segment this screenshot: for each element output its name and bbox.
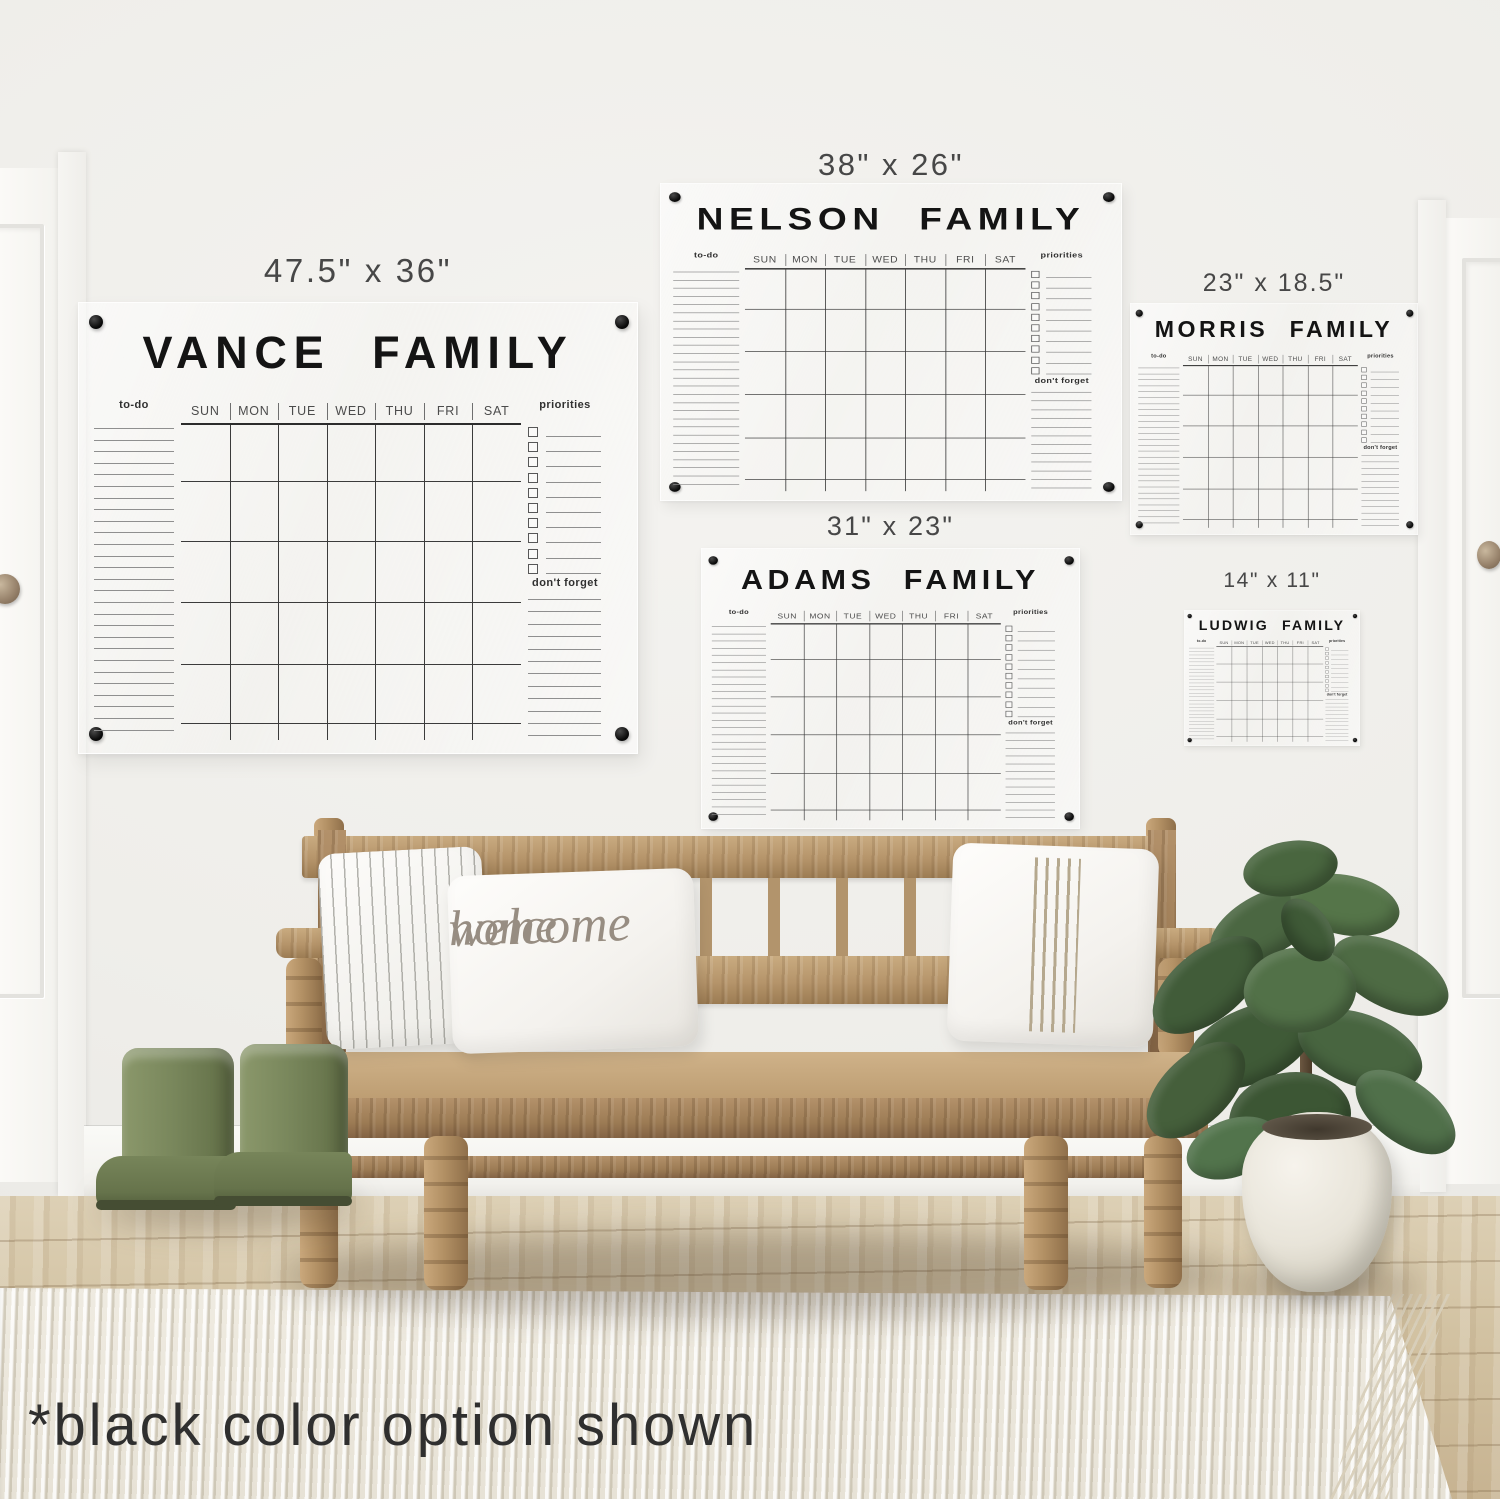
todo-line [1138, 415, 1179, 416]
priority-line [1018, 631, 1055, 632]
calendar-size-label: 38" x 26" [818, 147, 964, 183]
todo-line [94, 672, 174, 673]
bench-leg [424, 1136, 468, 1290]
calendar-size-label: 23" x 18.5" [1203, 269, 1346, 298]
todo-line [712, 749, 766, 750]
todo-line [712, 662, 766, 663]
day-label: WED [1262, 640, 1277, 646]
todo-line [94, 683, 174, 684]
priority-line [1371, 372, 1399, 373]
day-separator [1283, 355, 1284, 364]
dont-forget-line [1361, 481, 1399, 482]
priority-checkbox [1006, 682, 1013, 688]
dont-forget-label: don't forget [1325, 693, 1350, 697]
day-separator [375, 403, 376, 420]
todo-line [712, 720, 766, 721]
day-separator [865, 254, 866, 266]
todo-line [94, 625, 174, 626]
dont-forget-line [1361, 487, 1399, 488]
dont-forget-line [1031, 470, 1091, 471]
priority-line [1018, 641, 1055, 642]
day-label: WED [327, 401, 376, 421]
grid-line-horizontal [745, 479, 1026, 480]
todo-line [712, 785, 766, 786]
priority-line [1046, 352, 1091, 353]
acrylic-panel: VANCE FAMILYto-doSUNMONTUEWEDTHUFRISATpr… [78, 302, 638, 754]
priority-checkbox [528, 564, 538, 574]
todo-line [1138, 445, 1179, 446]
grid-line-vertical [945, 270, 946, 492]
calendar-size-label: 31" x 23" [827, 511, 954, 542]
mount-dot [1064, 812, 1073, 821]
priority-line [1018, 679, 1055, 680]
todo-line [673, 386, 739, 387]
calendar-size-label: 47.5" x 36" [264, 252, 452, 290]
priority-line [1371, 403, 1399, 404]
calendar-title: NELSON FAMILY [661, 198, 1121, 240]
todo-line [1138, 427, 1179, 428]
day-separator [869, 611, 870, 622]
todo-line [1138, 469, 1179, 470]
grid-line-vertical [1208, 366, 1209, 528]
priority-checkbox [1361, 422, 1366, 427]
todo-line [94, 614, 174, 615]
todo-line [1138, 505, 1179, 506]
todo-line [1138, 403, 1179, 404]
todo-line [673, 312, 739, 313]
todo-line [94, 509, 174, 510]
priority-checkbox [1361, 375, 1366, 380]
day-label: WED [1258, 354, 1283, 364]
priority-checkbox [1031, 335, 1039, 342]
todo-line [673, 484, 739, 485]
dont-forget-line [1361, 525, 1399, 526]
priority-checkbox [528, 442, 538, 452]
priority-line [1371, 387, 1399, 388]
door-right-knob [1477, 541, 1500, 569]
priority-line [546, 497, 601, 498]
priority-checkbox [1361, 437, 1366, 442]
todo-line [94, 428, 174, 429]
grid-line-horizontal [1183, 426, 1358, 427]
calendar-title: LUDWIG FAMILY [1184, 616, 1359, 634]
todo-line [94, 544, 174, 545]
todo-line [712, 691, 766, 692]
grid-line-horizontal [745, 394, 1026, 395]
grid-line-vertical [935, 624, 936, 820]
todo-line [1138, 522, 1179, 523]
acrylic-panel: MORRIS FAMILYto-doSUNMONTUEWEDTHUFRISATp… [1130, 303, 1418, 535]
todo-line [673, 427, 739, 428]
day-label: THU [905, 253, 945, 267]
day-label: TUE [1247, 640, 1262, 646]
day-label: THU [902, 610, 935, 622]
grid-line-horizontal [745, 309, 1026, 310]
priority-checkbox [528, 457, 538, 467]
priority-checkbox [1006, 664, 1013, 670]
day-label: TUE [278, 401, 327, 421]
day-label: SAT [985, 253, 1025, 267]
mount-dot [1353, 738, 1357, 742]
grid-line-horizontal [771, 773, 1001, 774]
dont-forget-line [1361, 475, 1399, 476]
calendar-title: VANCE FAMILY [79, 323, 637, 383]
todo-line [712, 626, 766, 627]
dont-forget-label: don't forget [526, 577, 604, 589]
priorities-label: priorities [1325, 639, 1350, 643]
dont-forget-line [528, 711, 601, 712]
todo-line [712, 698, 766, 699]
priority-checkbox [1031, 314, 1039, 321]
door-right-casing [1418, 200, 1446, 1192]
priority-line [1371, 419, 1399, 420]
priority-checkbox [1031, 367, 1039, 374]
plant-pot-rim [1262, 1114, 1372, 1140]
day-label: TUE [825, 253, 865, 267]
bench-shadow [280, 1232, 1230, 1318]
priority-checkbox [1325, 684, 1328, 687]
grid-line-horizontal [181, 602, 521, 603]
todo-line [1138, 439, 1179, 440]
priority-checkbox [1361, 414, 1366, 419]
priority-checkbox [1361, 391, 1366, 396]
priority-line [1046, 331, 1091, 332]
priority-line [1018, 660, 1055, 661]
grid-line-horizontal [771, 659, 1001, 660]
dont-forget-line [1031, 418, 1091, 419]
dont-forget-line [1006, 733, 1055, 734]
todo-line [94, 521, 174, 522]
todo-line [712, 713, 766, 714]
todo-line [1138, 380, 1179, 381]
pillow-welcome: welcome home [447, 868, 699, 1054]
priority-line [1018, 697, 1055, 698]
priority-checkbox [1031, 292, 1039, 299]
priority-line [546, 558, 601, 559]
todo-line [94, 498, 174, 499]
day-label: FRI [1293, 640, 1308, 646]
day-label: THU [1277, 640, 1292, 646]
priority-line [546, 512, 601, 513]
dont-forget-line [1361, 519, 1399, 520]
todo-line [673, 476, 739, 477]
grid-line-vertical [230, 425, 231, 740]
day-separator [836, 611, 837, 622]
todo-line [94, 486, 174, 487]
todo-line [712, 641, 766, 642]
grid-line-vertical [785, 270, 786, 492]
dont-forget-line [1031, 401, 1091, 402]
grid-line-vertical [327, 425, 328, 740]
priority-line [1371, 411, 1399, 412]
todo-line [712, 648, 766, 649]
todo-line [1138, 475, 1179, 476]
priority-checkbox [1006, 673, 1013, 679]
acrylic-panel: NELSON FAMILYto-doSUNMONTUEWEDTHUFRISATp… [660, 183, 1122, 501]
day-label: TUE [836, 610, 869, 622]
priority-checkbox [1325, 689, 1328, 692]
todo-line [94, 660, 174, 661]
todo-line [94, 706, 174, 707]
todo-line [1138, 493, 1179, 494]
day-separator [945, 254, 946, 266]
todo-line [94, 579, 174, 580]
mount-dot [1103, 482, 1115, 492]
dont-forget-line [1031, 409, 1091, 410]
priority-checkbox [1031, 346, 1039, 353]
priority-checkbox [1006, 635, 1013, 641]
day-label: THU [1283, 354, 1308, 364]
todo-line [673, 394, 739, 395]
grid-line-vertical [424, 425, 425, 740]
todo-line [1138, 481, 1179, 482]
priority-line [1371, 442, 1399, 443]
priority-checkbox [528, 503, 538, 513]
dont-forget-line [1006, 771, 1055, 772]
dont-forget-line [1006, 810, 1055, 811]
todo-line [1138, 499, 1179, 500]
dont-forget-label: don't forget [1360, 444, 1400, 450]
dont-forget-line [1031, 392, 1091, 393]
todo-line [712, 807, 766, 808]
todo-label: to-do [1189, 639, 1214, 643]
priority-line [546, 466, 601, 467]
grid-line-vertical [804, 624, 805, 820]
todo-line [712, 655, 766, 656]
mount-dot [615, 727, 629, 741]
bench-seat [272, 1052, 1208, 1100]
todo-line [712, 799, 766, 800]
priority-line [1018, 669, 1055, 670]
day-separator [278, 403, 279, 420]
dont-forget-line [1006, 740, 1055, 741]
day-label: SUN [1216, 640, 1231, 646]
todo-line [673, 288, 739, 289]
grid-line-vertical [836, 624, 837, 820]
todo-line [673, 370, 739, 371]
todo-line [673, 296, 739, 297]
priority-line [1371, 380, 1399, 381]
grid-line-vertical [865, 270, 866, 492]
dont-forget-line [1006, 748, 1055, 749]
todo-line [94, 590, 174, 591]
priority-line [546, 451, 601, 452]
dont-forget-line [1031, 436, 1091, 437]
priorities-label: priorities [1030, 251, 1094, 259]
room-scene: 47.5" x 36"VANCE FAMILYto-doSUNMONTUEWED… [0, 0, 1500, 1499]
todo-line [1138, 457, 1179, 458]
acrylic-panel: LUDWIG FAMILYto-doSUNMONTUEWEDTHUFRISATp… [1184, 610, 1360, 746]
day-label: MON [1208, 354, 1233, 364]
priority-checkbox [1325, 675, 1328, 678]
priority-checkbox [1325, 666, 1328, 669]
todo-line [1138, 433, 1179, 434]
grid-line-vertical [905, 270, 906, 492]
dont-forget-line [1361, 494, 1399, 495]
day-label: MON [230, 401, 279, 421]
todo-line [673, 361, 739, 362]
calendar-title: ADAMS FAMILY [702, 561, 1080, 598]
todo-line [712, 742, 766, 743]
dont-forget-line [1361, 455, 1399, 456]
day-label: MON [1232, 640, 1247, 646]
calendar-size-label: 14" x 11" [1223, 569, 1320, 593]
priority-line [1018, 707, 1055, 708]
todo-line [712, 670, 766, 671]
todo-line [712, 778, 766, 779]
day-label: FRI [1308, 354, 1333, 364]
pillow-striped-right [947, 842, 1160, 1047]
priority-checkbox [528, 533, 538, 543]
priority-checkbox [528, 549, 538, 559]
day-label: SUN [1183, 354, 1208, 364]
todo-line [673, 451, 739, 452]
todo-line [1138, 409, 1179, 410]
bench-arm-baluster [286, 958, 322, 1058]
priority-line [1046, 341, 1091, 342]
priority-checkbox [1361, 398, 1366, 403]
todo-line [94, 463, 174, 464]
priority-checkbox [1325, 670, 1328, 673]
todo-line [94, 567, 174, 568]
priority-checkbox [1031, 303, 1039, 310]
priority-line [1046, 277, 1091, 278]
priority-line [1371, 426, 1399, 427]
priority-checkbox [1031, 324, 1039, 331]
todo-line [712, 763, 766, 764]
day-separator [804, 611, 805, 622]
dont-forget-line [1006, 756, 1055, 757]
grid-line-vertical [278, 425, 279, 740]
todo-line [712, 677, 766, 678]
priority-checkbox [528, 518, 538, 528]
grid-line-horizontal [1183, 519, 1358, 520]
grid-line-horizontal [181, 541, 521, 542]
priority-checkbox [1325, 652, 1328, 655]
day-label: TUE [1233, 354, 1258, 364]
todo-line [712, 756, 766, 757]
day-label: MON [785, 253, 825, 267]
day-label: THU [375, 401, 424, 421]
todo-line [673, 304, 739, 305]
grid-line-vertical [1283, 366, 1284, 528]
todo-line [1138, 374, 1179, 375]
todo-line [712, 727, 766, 728]
grid-line-vertical [1258, 366, 1259, 528]
grid-line-vertical [985, 270, 986, 492]
todo-line [673, 272, 739, 273]
todo-line [712, 792, 766, 793]
pillow-stripe-band [1029, 857, 1081, 1032]
priority-checkbox [1325, 661, 1328, 664]
todo-line [94, 718, 174, 719]
day-separator [985, 254, 986, 266]
todo-line [1138, 463, 1179, 464]
grid-line-horizontal [1183, 457, 1358, 458]
todo-line [673, 468, 739, 469]
pillow-welcome-text: welcome home [448, 894, 694, 903]
mount-dot [1406, 521, 1413, 528]
todo-line [1138, 451, 1179, 452]
todo-label: to-do [712, 608, 766, 615]
todo-line [673, 353, 739, 354]
todo-line [712, 814, 766, 815]
todo-line [673, 280, 739, 281]
dont-forget-label: don't forget [1004, 719, 1057, 726]
dont-forget-line [1031, 479, 1091, 480]
day-separator [230, 403, 231, 420]
day-label: SAT [968, 610, 1001, 622]
day-separator [785, 254, 786, 266]
dont-forget-label: don't forget [1030, 376, 1094, 384]
header-underline [771, 623, 1001, 624]
dont-forget-line [1361, 500, 1399, 501]
priorities-label: priorities [526, 399, 604, 411]
grid-line-horizontal [771, 697, 1001, 698]
todo-line [94, 474, 174, 475]
grid-line-vertical [472, 425, 473, 740]
bench-leg [1144, 1136, 1182, 1288]
todo-line [673, 402, 739, 403]
dont-forget-line [528, 686, 601, 687]
priority-checkbox [1361, 430, 1366, 435]
grid-line-vertical [869, 624, 870, 820]
priority-checkbox [1361, 406, 1366, 411]
grid-line-vertical [1333, 366, 1334, 528]
grid-line-horizontal [771, 735, 1001, 736]
todo-line [94, 440, 174, 441]
dont-forget-line [1031, 444, 1091, 445]
day-label: FRI [945, 253, 985, 267]
day-separator [968, 611, 969, 622]
todo-line [1138, 368, 1179, 369]
priority-checkbox [528, 488, 538, 498]
priority-checkbox [1031, 271, 1039, 278]
door-left-panel [0, 224, 44, 998]
grid-line-horizontal [181, 664, 521, 665]
dont-forget-line [1006, 817, 1055, 818]
todo-line [1138, 487, 1179, 488]
priority-line [546, 436, 601, 437]
priorities-label: priorities [1360, 353, 1400, 359]
day-separator [1208, 355, 1209, 364]
boot-right-sole [214, 1196, 352, 1206]
todo-line [94, 637, 174, 638]
todo-line [1138, 397, 1179, 398]
day-separator [905, 254, 906, 266]
todo-line [1138, 386, 1179, 387]
dont-forget-line [1006, 787, 1055, 788]
todo-line [673, 435, 739, 436]
priority-checkbox [1361, 383, 1366, 388]
pillow-text-line2: home [448, 899, 558, 955]
grid-line-vertical [1233, 366, 1234, 528]
dont-forget-line [528, 649, 601, 650]
todo-line [673, 443, 739, 444]
day-label: SAT [1308, 640, 1323, 646]
priority-line [1046, 299, 1091, 300]
priority-line [1018, 688, 1055, 689]
header-underline [745, 268, 1026, 269]
dont-forget-line [1006, 802, 1055, 803]
priorities-label: priorities [1004, 608, 1057, 615]
day-label: SUN [771, 610, 804, 622]
grid-line-vertical [375, 425, 376, 740]
dont-forget-line [528, 599, 601, 600]
priority-line [1046, 288, 1091, 289]
todo-line [1138, 421, 1179, 422]
grid-line-horizontal [1183, 489, 1358, 490]
